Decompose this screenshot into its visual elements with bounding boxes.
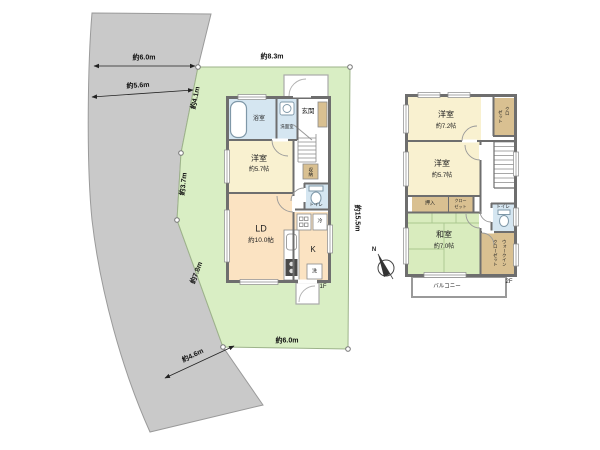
wic-col-l: クローゼット [493, 240, 498, 267]
closet-b-line2: ゼット [455, 205, 467, 209]
toilet-2f-label: トイレ [496, 205, 510, 210]
japanese-room-label: 和室 [436, 231, 452, 239]
toilet-1f-label: トイレ [309, 203, 323, 208]
bathtub-icon [231, 102, 247, 138]
stove-icon [286, 259, 298, 276]
closet-2f-col-l: ゼット [498, 110, 503, 124]
toilet-icon-2f [498, 210, 510, 227]
bath-label: 浴室 [253, 116, 265, 122]
floor1-tag: 1F [319, 284, 326, 290]
washroom-label: 洗面室 [280, 125, 294, 130]
western-a-size: 約7.2帖 [436, 124, 456, 130]
dim-top-width: 約6.0m [133, 55, 156, 62]
western-room-1f-size: 約5.7帖 [249, 167, 269, 173]
floor2-tag: 2F [505, 279, 512, 285]
north-label: N [372, 247, 376, 253]
western-room-1f-label: 洋室 [251, 155, 267, 163]
cabinet-icon [297, 214, 311, 230]
dim-lot-top: 約8.3m [261, 54, 284, 61]
japanese-room-size: 約7.0帖 [434, 244, 454, 250]
wic-col-r: ウォークイン [502, 240, 507, 267]
balcony-label: バルコニー [433, 284, 460, 290]
closet-2f-col-r: クロ [505, 107, 510, 116]
fridge-label: 冷 [317, 220, 322, 225]
living-dining-size: 約10.0帖 [248, 238, 274, 245]
sink-icon [287, 234, 297, 250]
oshiire-label: 押入 [425, 202, 435, 207]
washer-label: 洗 [312, 269, 317, 274]
entrance-label: 玄関 [302, 109, 315, 116]
compass-icon [378, 254, 394, 279]
floorplan-page: 約6.0m 約5.6m 約4.1m 約3.7m 約7.8m 約4.6m 約6.0… [0, 0, 600, 450]
closet-b-line1: クロー [455, 199, 467, 203]
storage-label: 収納 [308, 167, 313, 176]
dim-bottom-width: 約6.0m [276, 338, 299, 345]
kitchen-label: K [310, 246, 315, 254]
floorplan-canvas [0, 0, 600, 450]
western-b-size: 約5.7帖 [432, 173, 452, 179]
western-a-label: 洋室 [438, 111, 454, 119]
shoe-cabinet [318, 102, 327, 127]
dim-lot-right: 約15.5m [354, 205, 361, 232]
western-b-label: 洋室 [434, 160, 450, 168]
living-dining-label: LD [255, 225, 267, 234]
